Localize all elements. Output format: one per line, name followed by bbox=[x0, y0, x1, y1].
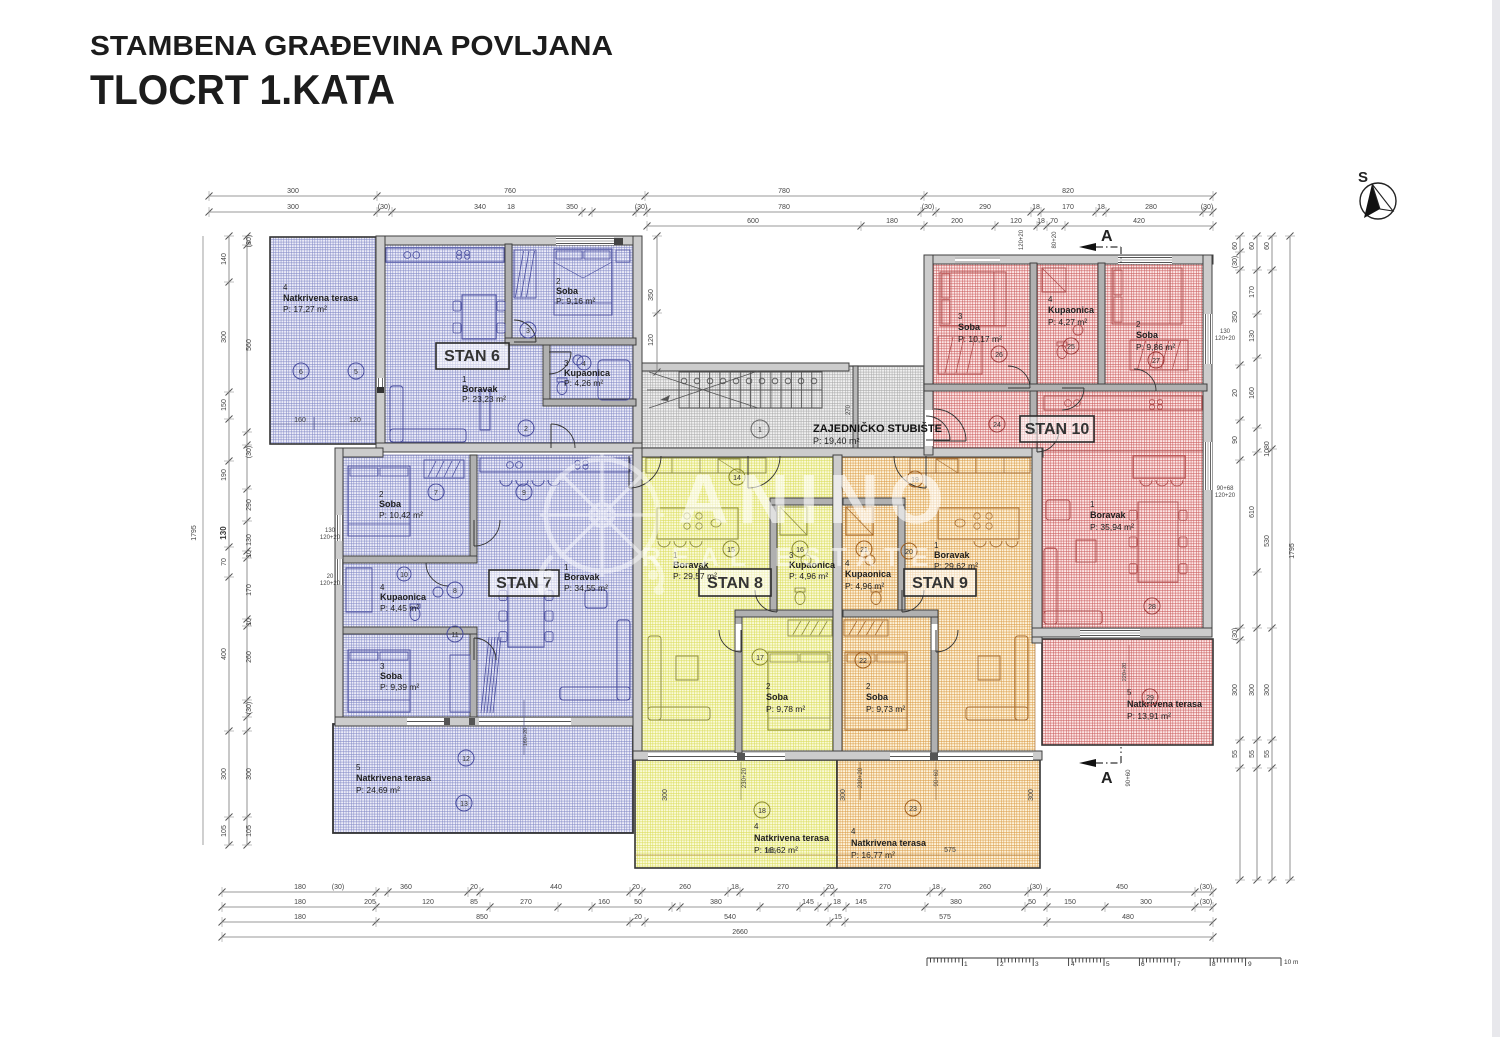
svg-text:420: 420 bbox=[1133, 218, 1145, 225]
svg-text:170: 170 bbox=[1249, 286, 1256, 298]
svg-text:7: 7 bbox=[434, 490, 438, 497]
svg-text:130: 130 bbox=[325, 528, 336, 534]
svg-text:300: 300 bbox=[287, 188, 299, 195]
svg-text:780: 780 bbox=[778, 188, 790, 195]
svg-text:440: 440 bbox=[550, 884, 562, 891]
svg-text:300: 300 bbox=[221, 768, 228, 780]
svg-text:5: 5 bbox=[356, 763, 361, 772]
svg-text:300: 300 bbox=[246, 768, 253, 780]
svg-text:2: 2 bbox=[1000, 961, 1004, 968]
svg-text:22: 22 bbox=[859, 658, 867, 665]
svg-text:180: 180 bbox=[886, 218, 898, 225]
svg-text:P: 4,96 m²: P: 4,96 m² bbox=[789, 571, 828, 581]
svg-text:130: 130 bbox=[1220, 329, 1231, 335]
svg-text:60: 60 bbox=[1264, 242, 1271, 250]
svg-text:85: 85 bbox=[470, 899, 478, 906]
svg-text:120+20: 120+20 bbox=[320, 581, 341, 587]
svg-text:1795: 1795 bbox=[191, 525, 198, 541]
svg-text:60: 60 bbox=[1232, 242, 1239, 250]
svg-text:ANINO: ANINO bbox=[678, 460, 954, 538]
svg-text:230+20: 230+20 bbox=[858, 767, 864, 788]
svg-text:575: 575 bbox=[944, 847, 956, 854]
svg-text:3: 3 bbox=[526, 328, 530, 335]
svg-text:50: 50 bbox=[1028, 899, 1036, 906]
svg-text:Soba: Soba bbox=[866, 692, 889, 702]
svg-text:300: 300 bbox=[840, 789, 847, 801]
svg-text:120: 120 bbox=[648, 334, 655, 346]
svg-text:270: 270 bbox=[777, 884, 789, 891]
svg-text:130: 130 bbox=[246, 534, 253, 546]
svg-text:50: 50 bbox=[634, 899, 642, 906]
svg-text:530: 530 bbox=[1264, 535, 1271, 547]
svg-text:Natkrivena terasa: Natkrivena terasa bbox=[1127, 699, 1203, 709]
svg-text:S: S bbox=[1358, 169, 1368, 186]
svg-text:300: 300 bbox=[287, 204, 299, 211]
svg-text:STAN 10: STAN 10 bbox=[1025, 421, 1090, 438]
svg-text:120: 120 bbox=[422, 899, 434, 906]
svg-text:280: 280 bbox=[1145, 204, 1157, 211]
svg-text:P: 10,42 m²: P: 10,42 m² bbox=[379, 510, 423, 520]
svg-text:(30): (30) bbox=[246, 446, 253, 458]
svg-text:160: 160 bbox=[598, 899, 610, 906]
svg-text:20: 20 bbox=[327, 574, 334, 580]
svg-text:90+60: 90+60 bbox=[934, 769, 940, 787]
svg-text:80+20: 80+20 bbox=[1052, 231, 1058, 249]
svg-text:20: 20 bbox=[1232, 389, 1239, 397]
svg-text:29: 29 bbox=[1146, 695, 1154, 702]
svg-text:12: 12 bbox=[462, 756, 470, 763]
svg-text:Boravak: Boravak bbox=[934, 550, 971, 560]
svg-text:70: 70 bbox=[221, 558, 228, 566]
svg-text:(30): (30) bbox=[1030, 884, 1042, 891]
svg-text:Natkrivena terasa: Natkrivena terasa bbox=[851, 838, 927, 848]
svg-text:18: 18 bbox=[1037, 218, 1045, 225]
svg-text:Soba: Soba bbox=[958, 322, 981, 332]
svg-text:90: 90 bbox=[1232, 436, 1239, 444]
svg-text:560: 560 bbox=[246, 339, 253, 351]
svg-text:8: 8 bbox=[453, 588, 457, 595]
svg-text:6: 6 bbox=[299, 369, 303, 376]
svg-text:145: 145 bbox=[802, 899, 814, 906]
svg-text:Soba: Soba bbox=[1136, 330, 1159, 340]
svg-text:P: 9,78 m²: P: 9,78 m² bbox=[766, 704, 805, 714]
svg-text:18: 18 bbox=[1097, 204, 1105, 211]
svg-text:450: 450 bbox=[1116, 884, 1128, 891]
svg-text:18: 18 bbox=[932, 884, 940, 891]
svg-text:540: 540 bbox=[724, 914, 736, 921]
svg-text:2: 2 bbox=[524, 426, 528, 433]
svg-text:300: 300 bbox=[1140, 899, 1152, 906]
svg-text:9: 9 bbox=[522, 490, 526, 497]
svg-text:P: 34,55 m²: P: 34,55 m² bbox=[564, 583, 608, 593]
svg-text:Natkrivena terasa: Natkrivena terasa bbox=[754, 833, 830, 843]
svg-text:P: 4,96 m²: P: 4,96 m² bbox=[845, 581, 884, 591]
svg-text:Natkrivena terasa: Natkrivena terasa bbox=[283, 293, 359, 303]
svg-text:140: 140 bbox=[221, 253, 228, 265]
svg-text:170: 170 bbox=[1062, 204, 1074, 211]
svg-text:120+20: 120+20 bbox=[1215, 493, 1236, 499]
svg-text:6: 6 bbox=[1141, 961, 1145, 968]
svg-text:120+20: 120+20 bbox=[320, 535, 341, 541]
svg-text:270: 270 bbox=[520, 899, 532, 906]
svg-text:10: 10 bbox=[246, 618, 253, 626]
svg-text:290: 290 bbox=[979, 204, 991, 211]
svg-text:11: 11 bbox=[451, 632, 458, 639]
svg-text:Soba: Soba bbox=[379, 499, 402, 509]
svg-text:1: 1 bbox=[1090, 500, 1095, 509]
svg-text:1795: 1795 bbox=[1289, 543, 1296, 559]
svg-text:300: 300 bbox=[662, 789, 669, 801]
svg-text:23: 23 bbox=[909, 806, 917, 813]
svg-text:(30): (30) bbox=[1200, 884, 1212, 891]
svg-text:2: 2 bbox=[556, 277, 561, 286]
svg-text:Soba: Soba bbox=[380, 671, 403, 681]
svg-text:STAN 6: STAN 6 bbox=[444, 348, 500, 365]
svg-text:230+20: 230+20 bbox=[742, 767, 748, 788]
svg-text:575: 575 bbox=[939, 914, 951, 921]
svg-text:300: 300 bbox=[1028, 789, 1035, 801]
svg-text:260: 260 bbox=[246, 651, 253, 663]
svg-text:400: 400 bbox=[221, 648, 228, 660]
svg-text:340: 340 bbox=[474, 204, 486, 211]
svg-text:55: 55 bbox=[1232, 750, 1239, 758]
svg-text:1: 1 bbox=[564, 563, 569, 572]
svg-text:P: 4,45 m²: P: 4,45 m² bbox=[380, 603, 419, 613]
svg-text:9: 9 bbox=[1248, 961, 1252, 968]
svg-text:260: 260 bbox=[679, 884, 691, 891]
svg-text:3: 3 bbox=[380, 662, 385, 671]
svg-text:480: 480 bbox=[1122, 914, 1134, 921]
svg-text:380: 380 bbox=[950, 899, 962, 906]
svg-text:(30): (30) bbox=[1232, 256, 1239, 268]
svg-text:(30): (30) bbox=[246, 702, 253, 714]
svg-text:P: 4,27 m²: P: 4,27 m² bbox=[1048, 317, 1087, 327]
svg-text:P: 29,62 m²: P: 29,62 m² bbox=[934, 561, 978, 571]
svg-text:600: 600 bbox=[747, 218, 759, 225]
svg-text:130: 130 bbox=[219, 526, 228, 540]
svg-text:(30): (30) bbox=[635, 204, 647, 211]
svg-text:(30): (30) bbox=[1232, 628, 1239, 640]
svg-text:2: 2 bbox=[379, 490, 384, 499]
svg-text:Boravak: Boravak bbox=[462, 384, 499, 394]
svg-text:5: 5 bbox=[1106, 961, 1110, 968]
svg-text:120: 120 bbox=[1010, 218, 1022, 225]
svg-text:270: 270 bbox=[846, 404, 852, 415]
svg-text:205: 205 bbox=[364, 899, 376, 906]
svg-text:Natkrivena terasa: Natkrivena terasa bbox=[356, 773, 432, 783]
svg-text:4: 4 bbox=[380, 583, 385, 592]
svg-text:610: 610 bbox=[1249, 506, 1256, 518]
svg-text:10: 10 bbox=[400, 572, 408, 579]
svg-text:(30): (30) bbox=[378, 204, 390, 211]
svg-text:Soba: Soba bbox=[766, 692, 789, 702]
svg-text:190: 190 bbox=[221, 469, 228, 481]
svg-text:28: 28 bbox=[1148, 604, 1156, 611]
svg-text:(30): (30) bbox=[246, 235, 253, 247]
svg-text:3: 3 bbox=[1035, 961, 1039, 968]
svg-text:10 m: 10 m bbox=[1284, 959, 1298, 966]
svg-text:TLOCRT 1.KATA: TLOCRT 1.KATA bbox=[90, 66, 395, 113]
svg-text:P: 35,94 m²: P: 35,94 m² bbox=[1090, 522, 1134, 532]
svg-text:220+20: 220+20 bbox=[1122, 663, 1128, 682]
svg-text:P: 10,17 m²: P: 10,17 m² bbox=[958, 334, 1002, 344]
svg-text:20: 20 bbox=[634, 914, 642, 921]
svg-text:300: 300 bbox=[1249, 684, 1256, 696]
svg-text:180: 180 bbox=[294, 914, 306, 921]
svg-text:180: 180 bbox=[294, 884, 306, 891]
svg-text:290: 290 bbox=[246, 499, 253, 511]
svg-text:P: 9,86 m²: P: 9,86 m² bbox=[1136, 342, 1175, 352]
svg-text:18: 18 bbox=[731, 884, 739, 891]
svg-text:P: 9,39 m²: P: 9,39 m² bbox=[380, 682, 419, 692]
svg-text:P: 9,73 m²: P: 9,73 m² bbox=[866, 704, 905, 714]
svg-text:2660: 2660 bbox=[732, 929, 748, 936]
svg-text:17: 17 bbox=[756, 655, 764, 662]
svg-text:150: 150 bbox=[1064, 899, 1076, 906]
svg-text:270: 270 bbox=[879, 884, 891, 891]
svg-text:Kupaonica: Kupaonica bbox=[1048, 305, 1095, 315]
svg-text:120+20: 120+20 bbox=[1215, 336, 1236, 342]
svg-text:24: 24 bbox=[993, 422, 1001, 429]
svg-text:25: 25 bbox=[1067, 344, 1075, 351]
svg-text:P: 16,62 m²: P: 16,62 m² bbox=[754, 845, 798, 855]
svg-text:170: 170 bbox=[246, 584, 253, 596]
svg-text:350: 350 bbox=[1232, 311, 1239, 323]
svg-text:350: 350 bbox=[566, 204, 578, 211]
svg-text:160+20: 160+20 bbox=[523, 728, 529, 747]
svg-text:7: 7 bbox=[1177, 961, 1181, 968]
svg-text:850: 850 bbox=[476, 914, 488, 921]
svg-text:300: 300 bbox=[1232, 684, 1239, 696]
svg-text:380: 380 bbox=[710, 899, 722, 906]
svg-text:1: 1 bbox=[462, 375, 467, 384]
svg-text:10: 10 bbox=[246, 550, 253, 558]
svg-text:STAMBENA GRAĐEVINA POVLJANA: STAMBENA GRAĐEVINA POVLJANA bbox=[90, 30, 613, 61]
svg-text:1: 1 bbox=[758, 427, 762, 434]
svg-text:350: 350 bbox=[648, 289, 655, 301]
svg-text:Kupaonica: Kupaonica bbox=[380, 592, 427, 602]
svg-text:200: 200 bbox=[951, 218, 963, 225]
svg-text:55: 55 bbox=[1264, 750, 1271, 758]
svg-text:A: A bbox=[1101, 770, 1113, 787]
svg-text:360: 360 bbox=[400, 884, 412, 891]
svg-text:145: 145 bbox=[855, 899, 867, 906]
svg-text:165: 165 bbox=[764, 848, 776, 855]
svg-text:18: 18 bbox=[833, 899, 841, 906]
svg-text:1: 1 bbox=[964, 961, 968, 968]
svg-text:(30): (30) bbox=[922, 204, 934, 211]
svg-text:60: 60 bbox=[1249, 242, 1256, 250]
svg-text:780: 780 bbox=[778, 204, 790, 211]
svg-text:20: 20 bbox=[826, 884, 834, 891]
svg-text:4: 4 bbox=[1071, 961, 1075, 968]
svg-text:105: 105 bbox=[221, 825, 228, 837]
svg-text:(30): (30) bbox=[1201, 204, 1213, 211]
svg-text:2: 2 bbox=[866, 682, 871, 691]
svg-text:STAN 9: STAN 9 bbox=[912, 575, 968, 592]
svg-text:760: 760 bbox=[504, 188, 516, 195]
svg-text:5: 5 bbox=[1127, 688, 1132, 697]
svg-text:13: 13 bbox=[460, 801, 468, 808]
svg-text:P: 17,27 m²: P: 17,27 m² bbox=[283, 304, 327, 314]
svg-text:120: 120 bbox=[349, 417, 361, 424]
svg-text:P: 19,40 m²: P: 19,40 m² bbox=[813, 436, 860, 446]
svg-text:18: 18 bbox=[758, 808, 766, 815]
svg-text:Boravak: Boravak bbox=[1090, 510, 1127, 520]
svg-text:27: 27 bbox=[1152, 358, 1160, 365]
svg-text:20: 20 bbox=[470, 884, 478, 891]
svg-text:130: 130 bbox=[1249, 330, 1256, 342]
svg-text:5: 5 bbox=[354, 369, 358, 376]
svg-text:160: 160 bbox=[294, 417, 306, 424]
svg-text:26: 26 bbox=[995, 352, 1003, 359]
svg-text:820: 820 bbox=[1062, 188, 1074, 195]
svg-text:4: 4 bbox=[283, 283, 288, 292]
svg-text:P: 9,16 m²: P: 9,16 m² bbox=[556, 296, 595, 306]
svg-text:3: 3 bbox=[958, 312, 963, 321]
svg-text:ZAJEDNIČKO STUBIŠTE: ZAJEDNIČKO STUBIŠTE bbox=[813, 422, 942, 435]
svg-text:1080: 1080 bbox=[1264, 441, 1271, 457]
svg-text:260: 260 bbox=[979, 884, 991, 891]
svg-text:15: 15 bbox=[834, 914, 842, 921]
svg-text:70: 70 bbox=[1050, 218, 1058, 225]
svg-text:3: 3 bbox=[564, 359, 569, 368]
svg-text:18: 18 bbox=[1032, 204, 1040, 211]
svg-text:2: 2 bbox=[1136, 320, 1141, 329]
svg-text:120+20: 120+20 bbox=[1019, 229, 1025, 250]
svg-text:90+60: 90+60 bbox=[1126, 769, 1132, 787]
svg-text:4: 4 bbox=[851, 827, 856, 836]
svg-text:2: 2 bbox=[766, 682, 771, 691]
svg-text:P: 29,57 m²: P: 29,57 m² bbox=[673, 571, 717, 581]
svg-text:300: 300 bbox=[221, 331, 228, 343]
svg-text:REAL ESTATE: REAL ESTATE bbox=[642, 542, 939, 572]
svg-text:Soba: Soba bbox=[556, 286, 579, 296]
svg-text:P: 13,91 m²: P: 13,91 m² bbox=[1127, 711, 1171, 721]
svg-text:90+68: 90+68 bbox=[1217, 486, 1235, 492]
svg-text:8: 8 bbox=[1212, 961, 1216, 968]
svg-text:55: 55 bbox=[1249, 750, 1256, 758]
svg-text:P: 24,69 m²: P: 24,69 m² bbox=[356, 785, 400, 795]
svg-text:160: 160 bbox=[1249, 387, 1256, 399]
svg-text:18: 18 bbox=[507, 204, 515, 211]
svg-text:300: 300 bbox=[1264, 684, 1271, 696]
svg-text:A: A bbox=[1101, 228, 1113, 245]
svg-text:20: 20 bbox=[632, 884, 640, 891]
svg-text:150: 150 bbox=[221, 399, 228, 411]
svg-text:4: 4 bbox=[582, 361, 586, 368]
svg-text:180: 180 bbox=[294, 899, 306, 906]
svg-text:4: 4 bbox=[754, 822, 759, 831]
svg-text:Boravak: Boravak bbox=[564, 572, 601, 582]
svg-text:P: 4,26 m²: P: 4,26 m² bbox=[564, 378, 603, 388]
svg-text:P: 23,23 m²: P: 23,23 m² bbox=[462, 394, 506, 404]
svg-text:(30): (30) bbox=[332, 884, 344, 891]
svg-text:(30): (30) bbox=[1200, 899, 1212, 906]
svg-text:105: 105 bbox=[246, 825, 253, 837]
svg-text:4: 4 bbox=[1048, 295, 1053, 304]
